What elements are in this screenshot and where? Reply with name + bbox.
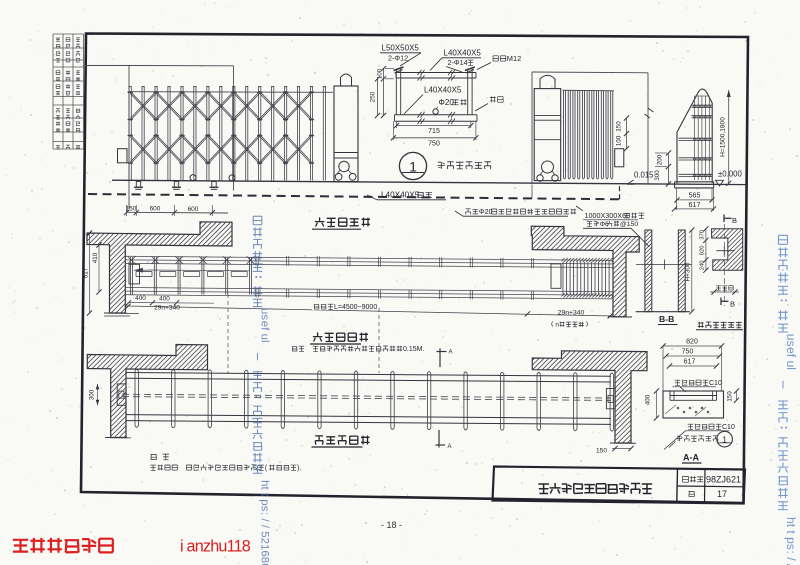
svg-text:h: h	[258, 480, 270, 486]
svg-text:6: 6	[258, 550, 270, 556]
svg-text:200: 200	[657, 154, 664, 165]
svg-text:C10: C10	[709, 380, 722, 387]
svg-text:250: 250	[370, 91, 377, 102]
svg-text:B-B: B-B	[659, 314, 674, 324]
svg-text:150: 150	[126, 205, 137, 212]
svg-text:Φ20: Φ20	[439, 98, 455, 107]
svg-text:750: 750	[428, 141, 440, 148]
svg-text:u: u	[258, 334, 270, 340]
svg-text:750: 750	[682, 349, 694, 356]
svg-text:±0.000: ±0.000	[718, 170, 742, 179]
svg-text:240: 240	[699, 260, 705, 270]
svg-text:600: 600	[150, 206, 161, 213]
svg-text:100: 100	[377, 68, 384, 79]
svg-text:L50X50X5: L50X50X5	[382, 44, 420, 53]
svg-text:617: 617	[684, 359, 696, 366]
svg-text:8: 8	[258, 557, 270, 563]
svg-text:0.015: 0.015	[634, 171, 654, 180]
svg-text:150: 150	[596, 448, 607, 455]
svg-text:Φ20: Φ20	[479, 207, 493, 216]
svg-text:370: 370	[699, 230, 705, 240]
svg-text:i anzhu118: i anzhu118	[180, 538, 251, 556]
svg-text:s: s	[258, 506, 270, 512]
svg-text:300: 300	[654, 170, 661, 181]
svg-text:L=4500~9000: L=4500~9000	[334, 304, 377, 311]
svg-text:2-Φ12: 2-Φ12	[388, 54, 408, 63]
svg-text::: :	[784, 551, 798, 554]
svg-text:150: 150	[616, 121, 623, 132]
svg-text:565: 565	[689, 193, 701, 200]
svg-text:u: u	[784, 334, 798, 341]
svg-text:410: 410	[92, 252, 99, 263]
svg-text:715: 715	[428, 128, 440, 135]
svg-text:L40X40X5: L40X40X5	[424, 86, 462, 95]
svg-text:820: 820	[686, 339, 698, 346]
svg-text:1: 1	[258, 544, 270, 550]
svg-text:l: l	[784, 367, 798, 370]
svg-text:@150: @150	[620, 221, 638, 228]
svg-text:617: 617	[83, 267, 90, 278]
svg-text:2: 2	[258, 538, 270, 544]
svg-text:A: A	[448, 444, 452, 450]
svg-text:B: B	[732, 216, 737, 225]
svg-text:17: 17	[717, 489, 727, 499]
svg-text:L40X40X5: L40X40X5	[381, 191, 420, 200]
svg-text:2-Φ14: 2-Φ14	[448, 58, 468, 67]
svg-text:u: u	[784, 361, 798, 368]
svg-text:u: u	[258, 308, 270, 314]
svg-text:).: ).	[297, 463, 301, 472]
svg-text:L40X40X5: L40X40X5	[444, 49, 482, 58]
svg-text:Φ6: Φ6	[600, 221, 609, 228]
svg-text::: :	[258, 512, 270, 515]
svg-text:29n+340: 29n+340	[154, 305, 180, 312]
svg-text:s: s	[258, 314, 270, 320]
svg-text:M12: M12	[507, 54, 521, 63]
svg-text:s: s	[784, 340, 798, 346]
svg-text:l: l	[258, 340, 270, 343]
svg-text:- 18 -: - 18 -	[381, 520, 402, 530]
svg-text:H=1500,1800: H=1500,1800	[720, 117, 727, 157]
svg-text:e: e	[258, 321, 270, 327]
svg-text:n: n	[555, 322, 559, 329]
svg-text:B: B	[730, 300, 735, 309]
svg-text:1000X300X60: 1000X300X60	[585, 211, 631, 220]
svg-text:820: 820	[699, 246, 705, 256]
svg-text:300: 300	[89, 389, 96, 400]
svg-text:5: 5	[258, 531, 270, 537]
svg-text:0.15M.: 0.15M.	[403, 346, 424, 353]
svg-text:100: 100	[616, 135, 623, 146]
svg-text:400: 400	[159, 295, 170, 302]
svg-text:p: p	[258, 499, 270, 505]
svg-text:617: 617	[689, 202, 701, 209]
svg-text:29n+340: 29n+340	[558, 309, 585, 316]
svg-text:400: 400	[135, 295, 146, 302]
svg-text:A-A: A-A	[683, 453, 699, 463]
svg-text:H+300: H+300	[684, 262, 691, 281]
svg-text:A: A	[449, 350, 453, 356]
svg-text:98ZJ621: 98ZJ621	[706, 475, 741, 485]
svg-text:150: 150	[727, 391, 734, 402]
svg-text:h: h	[784, 517, 798, 524]
svg-text:400: 400	[645, 394, 652, 405]
svg-text:C10: C10	[722, 424, 735, 431]
svg-text:s: s	[784, 544, 798, 550]
svg-text:600: 600	[188, 206, 199, 213]
